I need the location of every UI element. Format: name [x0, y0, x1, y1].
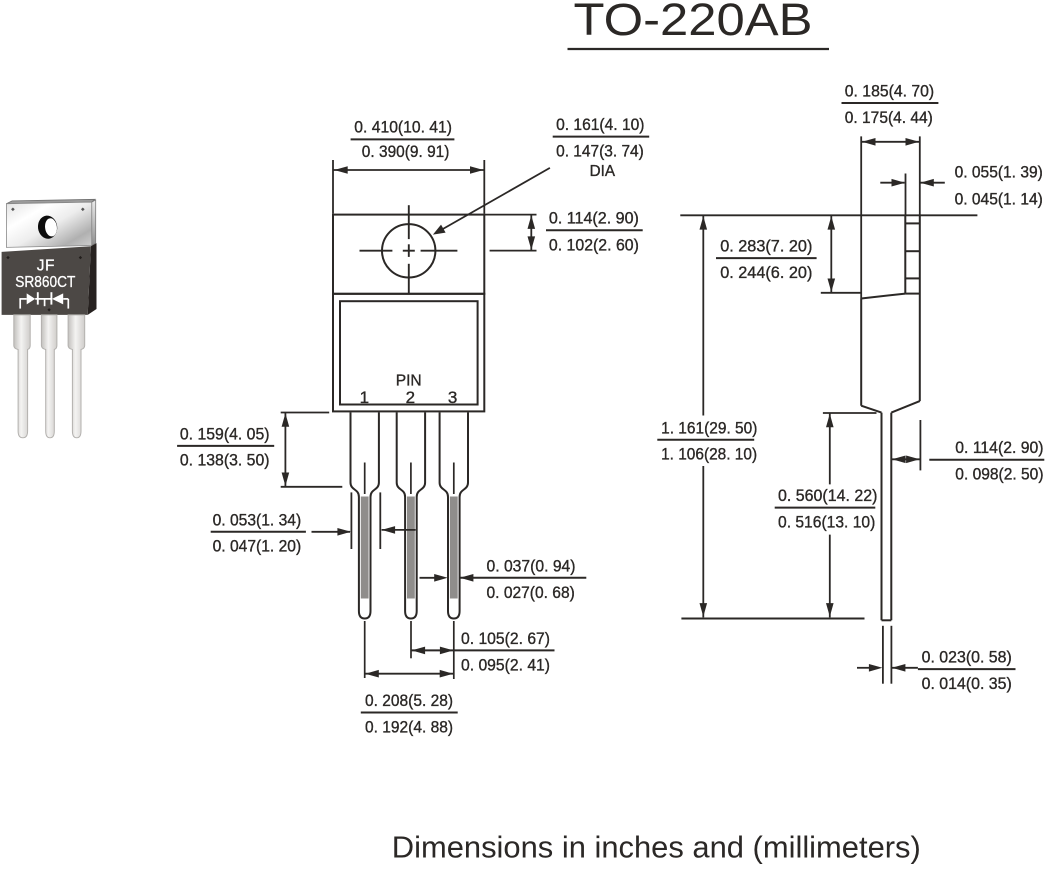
svg-text:0. 244(6. 20): 0. 244(6. 20) [720, 264, 812, 282]
svg-text:0. 102(2. 60): 0. 102(2. 60) [549, 236, 639, 254]
svg-text:0. 410(10. 41): 0. 410(10. 41) [354, 119, 452, 137]
svg-text:0. 390(9. 91): 0. 390(9. 91) [362, 143, 450, 161]
svg-text:DIA: DIA [590, 163, 616, 180]
svg-text:SR860CT: SR860CT [15, 274, 75, 291]
svg-text:0. 047(1. 20): 0. 047(1. 20) [213, 538, 302, 556]
svg-text:0. 023(0. 58): 0. 023(0. 58) [922, 649, 1012, 667]
svg-text:0. 053(1. 34): 0. 053(1. 34) [213, 511, 302, 529]
svg-text:1: 1 [360, 388, 369, 407]
svg-text:0. 159(4. 05): 0. 159(4. 05) [180, 426, 270, 444]
svg-text:0. 114(2. 90): 0. 114(2. 90) [549, 210, 639, 228]
svg-text:2: 2 [406, 388, 415, 407]
svg-text:0. 055(1. 39): 0. 055(1. 39) [955, 163, 1043, 181]
svg-text:0. 095(2. 41): 0. 095(2. 41) [461, 656, 550, 674]
svg-text:TO-220AB: TO-220AB [574, 0, 813, 45]
svg-text:0. 138(3. 50): 0. 138(3. 50) [180, 452, 270, 470]
svg-text:0. 147(3. 74): 0. 147(3. 74) [556, 142, 644, 160]
svg-text:0. 037(0. 94): 0. 037(0. 94) [487, 558, 576, 576]
svg-text:0. 283(7. 20): 0. 283(7. 20) [720, 238, 812, 256]
svg-text:0. 098(2. 50): 0. 098(2. 50) [955, 465, 1043, 483]
svg-text:0. 516(13. 10): 0. 516(13. 10) [778, 514, 875, 532]
svg-text:0. 014(0. 35): 0. 014(0. 35) [922, 675, 1012, 693]
svg-text:Dimensions in inches and (mill: Dimensions in inches and (millimeters) [392, 830, 921, 865]
svg-text:0. 161(4. 10): 0. 161(4. 10) [556, 116, 644, 134]
svg-text:JF: JF [37, 258, 55, 275]
svg-text:0. 114(2. 90): 0. 114(2. 90) [955, 439, 1043, 457]
svg-text:0. 208(5. 28): 0. 208(5. 28) [365, 692, 453, 710]
svg-text:0. 560(14. 22): 0. 560(14. 22) [778, 487, 877, 505]
svg-text:0. 105(2. 67): 0. 105(2. 67) [461, 630, 550, 648]
svg-text:0. 027(0. 68): 0. 027(0. 68) [487, 584, 575, 602]
svg-text:0. 175(4. 44): 0. 175(4. 44) [845, 109, 933, 127]
svg-text:0. 185(4. 70): 0. 185(4. 70) [845, 82, 934, 100]
svg-text:0. 045(1. 14): 0. 045(1. 14) [955, 190, 1043, 208]
svg-text:1. 161(29. 50): 1. 161(29. 50) [661, 419, 757, 437]
svg-text:0. 192(4. 88): 0. 192(4. 88) [365, 718, 453, 736]
svg-text:1. 106(28. 10): 1. 106(28. 10) [661, 446, 757, 464]
svg-text:3: 3 [448, 388, 457, 407]
